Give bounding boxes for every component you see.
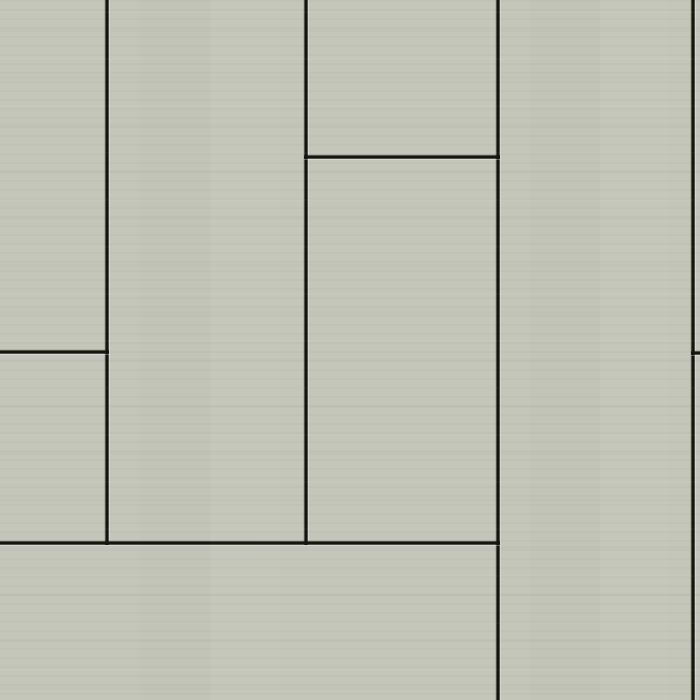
joint-h4 [691,351,700,355]
joint-v1 [105,0,109,545]
joint-h2 [0,350,109,354]
panel-cladding-texture [0,0,700,700]
joint-v4 [691,0,695,700]
joint-v2 [304,0,308,545]
joint-v3 [496,0,500,700]
joint-h3 [0,541,500,545]
joint-h1 [304,155,500,159]
